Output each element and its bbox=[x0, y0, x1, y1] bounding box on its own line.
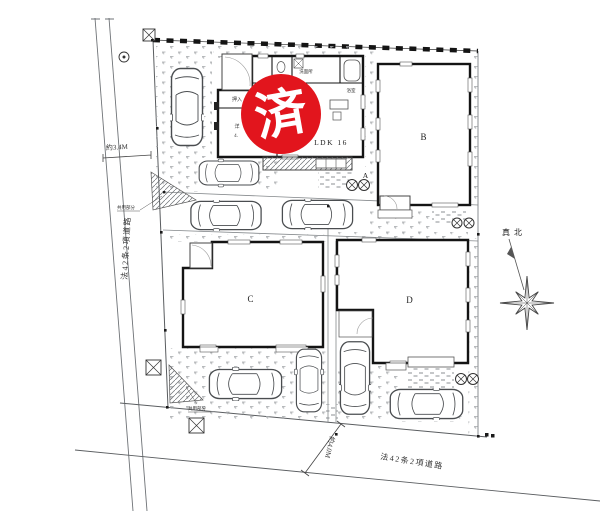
site-plan: 押入 洋 4. 洗面所 浴室 LDK 16 A B C bbox=[0, 0, 600, 511]
car-icon bbox=[191, 199, 261, 232]
building-c-label: C bbox=[247, 294, 254, 304]
boundary-marker-icon bbox=[146, 360, 161, 375]
sold-stamp: 済 bbox=[241, 74, 321, 154]
common-area-label-2: 共用部分 bbox=[188, 405, 206, 412]
boundary-marker-icon bbox=[189, 418, 204, 433]
road-left-label: 法42条2項道路 bbox=[119, 216, 132, 280]
room-label-western-size: 4. bbox=[234, 134, 238, 139]
dimension-left: 約3.4M bbox=[103, 142, 151, 162]
car-icon bbox=[209, 367, 281, 401]
car-icon bbox=[294, 349, 323, 412]
building-b: B bbox=[376, 62, 472, 224]
road-bottom-label: 法42条2項道路 bbox=[380, 451, 445, 471]
north-arrowhead-icon bbox=[507, 247, 515, 259]
room-label-western: 洋 bbox=[234, 123, 239, 130]
kitchen-counter-icon bbox=[330, 100, 348, 109]
building-d-label: D bbox=[406, 295, 414, 305]
room-label-washroom: 洗面所 bbox=[299, 68, 313, 75]
dimension-bottom: 約4.0M bbox=[301, 421, 345, 476]
dimension-bottom-label: 約4.0M bbox=[323, 436, 337, 460]
building-a-label: A bbox=[363, 171, 369, 180]
building-b-label: B bbox=[420, 132, 427, 142]
room-label-closet: 押入 bbox=[232, 96, 242, 103]
compass: 真北 bbox=[500, 227, 554, 330]
car-icon bbox=[169, 69, 205, 146]
car-icon bbox=[390, 387, 462, 421]
benchmark-dot bbox=[123, 56, 125, 58]
utility-meter-icon bbox=[347, 180, 370, 191]
room-label-bath: 浴室 bbox=[347, 87, 356, 94]
car-icon bbox=[338, 342, 372, 414]
site-plan-canvas: 押入 洋 4. 洗面所 浴室 LDK 16 A B C bbox=[0, 0, 600, 511]
porch bbox=[339, 311, 372, 337]
toilet-icon bbox=[277, 62, 285, 73]
left-road bbox=[91, 18, 147, 511]
porch bbox=[190, 243, 212, 268]
north-label: 真北 bbox=[502, 227, 526, 237]
porch bbox=[380, 196, 410, 210]
compass-rose-icon bbox=[500, 276, 554, 330]
north-arrow bbox=[509, 239, 524, 290]
dimension-left-label: 約3.4M bbox=[106, 142, 129, 152]
shutter-icon bbox=[214, 102, 219, 110]
room-label-ldk: LDK 16 bbox=[314, 138, 348, 147]
bathtub-icon bbox=[344, 60, 360, 81]
utility-meter-icon bbox=[456, 374, 479, 385]
shutter-icon bbox=[214, 122, 219, 130]
sold-stamp-label: 済 bbox=[251, 82, 313, 148]
common-area-label-1: 共用部分 bbox=[117, 204, 135, 211]
building-c: C bbox=[181, 240, 325, 352]
car-icon bbox=[199, 159, 259, 187]
car-icon bbox=[282, 198, 352, 231]
